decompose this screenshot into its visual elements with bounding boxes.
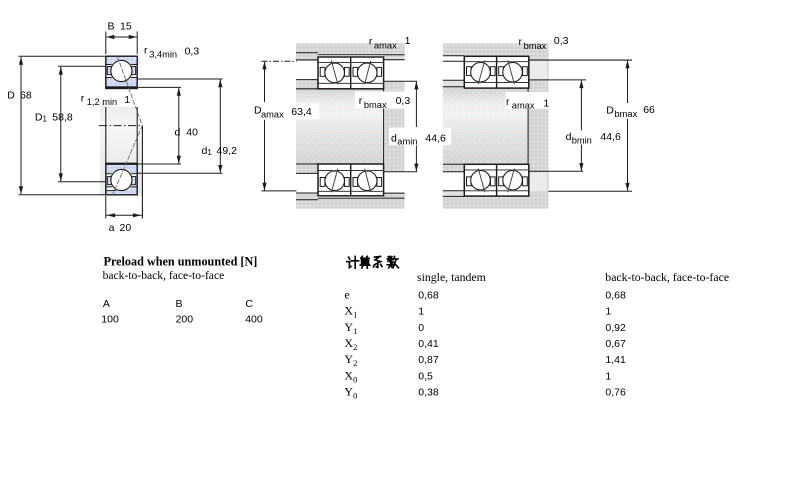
svg-text:0,3: 0,3: [396, 95, 411, 107]
svg-text:44,6: 44,6: [600, 131, 621, 143]
svg-text:bmax: bmax: [524, 41, 547, 51]
svg-text:1,41: 1,41: [605, 354, 626, 366]
svg-text:d: d: [391, 133, 397, 145]
svg-text:D: D: [606, 105, 614, 117]
svg-text:63,4: 63,4: [291, 106, 312, 118]
svg-text:X2: X2: [344, 336, 357, 352]
svg-text:amin: amin: [397, 137, 417, 147]
svg-text:1: 1: [605, 370, 611, 382]
svg-text:Y1: Y1: [344, 320, 357, 336]
svg-text:20: 20: [120, 222, 132, 234]
svg-text:X0: X0: [344, 368, 357, 384]
svg-text:15: 15: [120, 21, 132, 33]
svg-text:0,41: 0,41: [418, 338, 439, 350]
svg-text:40: 40: [186, 127, 198, 139]
svg-text:B: B: [108, 21, 115, 33]
svg-text:66: 66: [643, 104, 655, 116]
svg-text:bmax: bmax: [615, 109, 638, 119]
svg-text:Y0: Y0: [344, 385, 357, 401]
svg-text:D: D: [7, 90, 15, 102]
svg-text:0,3: 0,3: [554, 35, 569, 47]
svg-text:0,76: 0,76: [605, 387, 626, 399]
svg-text:1: 1: [605, 306, 611, 318]
svg-text:100: 100: [101, 314, 119, 326]
svg-text:0,67: 0,67: [605, 338, 626, 350]
svg-text:1: 1: [405, 35, 411, 47]
svg-text:r: r: [81, 92, 85, 104]
svg-text:1: 1: [124, 94, 130, 106]
svg-text:d: d: [566, 131, 572, 143]
svg-text:amax: amax: [261, 110, 284, 120]
svg-text:44,6: 44,6: [425, 132, 446, 144]
svg-text:bmax: bmax: [364, 100, 387, 110]
svg-text:a: a: [109, 222, 115, 234]
svg-text:bmin: bmin: [572, 135, 592, 145]
svg-text:0,87: 0,87: [418, 354, 439, 366]
svg-text:1: 1: [418, 306, 424, 318]
svg-text:r: r: [144, 45, 148, 57]
svg-text:0: 0: [418, 322, 424, 334]
svg-text:r: r: [519, 36, 523, 48]
svg-text:0,5: 0,5: [418, 370, 433, 382]
svg-text:A: A: [103, 298, 110, 310]
svg-text:r: r: [359, 95, 363, 107]
svg-text:d: d: [175, 127, 181, 139]
svg-text:back-to-back, face-to-face: back-to-back, face-to-face: [103, 269, 225, 282]
svg-text:single, tandem: single, tandem: [417, 270, 486, 284]
svg-text:d1: d1: [202, 145, 213, 157]
svg-text:1,2 min: 1,2 min: [87, 97, 118, 107]
svg-text:amax: amax: [512, 100, 535, 110]
svg-text:0,3: 0,3: [185, 45, 200, 57]
svg-text:r: r: [369, 36, 373, 48]
svg-text:1: 1: [543, 98, 549, 110]
svg-text:3,4min: 3,4min: [149, 50, 177, 60]
svg-text:58,8: 58,8: [52, 112, 73, 124]
svg-text:400: 400: [245, 314, 263, 326]
svg-text:200: 200: [176, 314, 194, 326]
svg-text:r: r: [506, 96, 510, 108]
svg-text:back-to-back, face-to-face: back-to-back, face-to-face: [605, 270, 729, 284]
svg-text:Y2: Y2: [344, 352, 357, 368]
svg-text:0,68: 0,68: [605, 290, 626, 302]
svg-text:0,68: 0,68: [418, 290, 439, 302]
svg-text:amax: amax: [374, 41, 397, 51]
svg-text:Preload when unmounted [N]: Preload when unmounted [N]: [104, 254, 258, 268]
svg-text:X1: X1: [344, 304, 357, 320]
svg-text:C: C: [245, 298, 253, 310]
svg-text:B: B: [176, 298, 183, 310]
svg-text:0,38: 0,38: [418, 387, 439, 399]
svg-text:68: 68: [20, 90, 32, 102]
svg-text:49,2: 49,2: [217, 145, 238, 157]
svg-text:0,92: 0,92: [605, 322, 626, 334]
svg-text:e: e: [344, 288, 349, 302]
svg-text:D1: D1: [35, 112, 48, 124]
